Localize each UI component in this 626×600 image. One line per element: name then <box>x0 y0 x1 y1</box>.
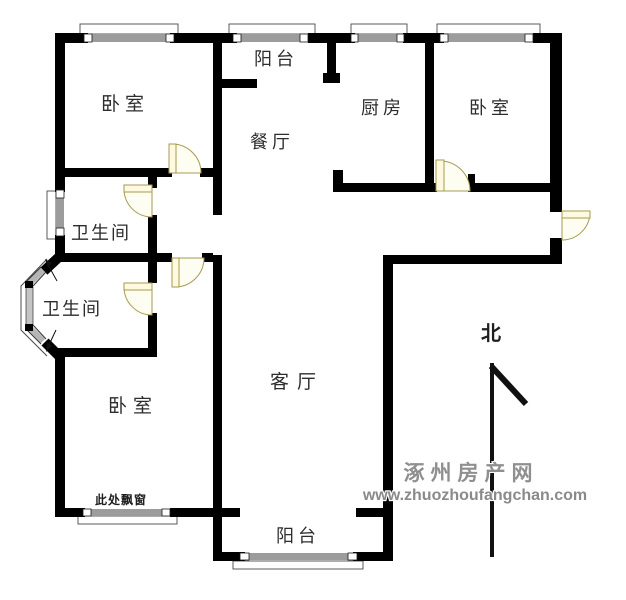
room-label-bathroom-upper: 卫生间 <box>71 223 131 243</box>
wall-segment <box>55 168 172 177</box>
room-label-dining-room: 餐厅 <box>250 132 294 152</box>
window-cap <box>348 553 357 560</box>
window-cap <box>83 509 91 516</box>
watermark: 涿州房产网www.zhuozhoufangchan.com <box>362 461 587 504</box>
window-cap <box>525 34 533 42</box>
doors-layer <box>124 144 590 315</box>
wall-segment <box>55 253 172 262</box>
floor-plan-page: 卧室阳台餐厅厨房卧室卫生间卫生间客厅卧室阳台此处飘窗北 涿州房产网www.zhu… <box>0 0 626 600</box>
window-glass <box>85 509 170 516</box>
wall-segment <box>353 552 392 561</box>
wall-segment <box>213 33 222 215</box>
wall-segment <box>323 73 340 83</box>
watermark-url: www.zhuozhoufangchan.com <box>362 487 587 504</box>
wall-segment <box>468 183 556 192</box>
wall-segment <box>200 168 222 177</box>
window-sill <box>80 24 178 34</box>
door-bathroom-upper-swing <box>124 189 152 217</box>
wall-segment <box>55 352 65 517</box>
room-label-kitchen: 厨房 <box>361 98 405 118</box>
room-label-balcony-bottom: 阳台 <box>276 526 320 546</box>
window-glass <box>245 553 353 560</box>
wall-segment <box>170 508 240 517</box>
bay-window-cap <box>25 324 33 331</box>
wall-segment <box>55 348 157 357</box>
north-arrow <box>491 363 526 557</box>
watermark-site-name: 涿州房产网 <box>404 461 539 485</box>
window-cap <box>300 34 308 42</box>
window-sill <box>78 516 177 524</box>
window-cap <box>351 34 358 42</box>
north-label: 北 <box>481 322 501 345</box>
window-cap <box>56 190 64 198</box>
window-cap <box>166 34 174 42</box>
door-bedroom-top-right-leaf <box>436 160 444 191</box>
window-cap <box>56 228 64 236</box>
door-bathroom-upper-leaf <box>124 185 152 192</box>
room-label-bedroom-top-left: 卧室 <box>101 93 149 115</box>
wall-segment <box>55 33 88 43</box>
window-cap <box>440 34 448 42</box>
room-label-balcony-top: 阳台 <box>254 49 298 69</box>
room-label-bedroom-bottom: 卧室 <box>108 395 158 417</box>
door-bedroom-bottom-leaf <box>172 258 179 287</box>
wall-segment <box>170 33 237 43</box>
window-sill <box>47 191 56 239</box>
window-cap <box>84 34 92 42</box>
bay-window-glass <box>26 287 33 325</box>
window-sill <box>233 561 363 569</box>
wall-segment <box>383 255 562 264</box>
wall-segment <box>55 508 85 517</box>
wall-segment <box>403 33 444 43</box>
window-sill <box>351 24 407 34</box>
door-bedroom-top-left-leaf <box>169 144 176 173</box>
bay-window-note: 此处飘窗 <box>95 492 147 507</box>
window-cap <box>162 509 170 516</box>
north-arrow-head <box>491 366 526 404</box>
window-cap <box>397 34 404 42</box>
bay-window-cap <box>25 281 33 288</box>
door-bathroom-lower-leaf <box>124 283 152 290</box>
wall-segment <box>148 262 157 283</box>
window-sill <box>229 24 315 34</box>
window-cap <box>240 553 249 560</box>
wall-segment <box>425 33 434 192</box>
door-bathroom-lower-swing <box>124 287 152 315</box>
window-glass <box>237 34 308 42</box>
window-glass <box>88 34 170 42</box>
wall-segment <box>356 508 392 517</box>
wall-segment <box>333 183 437 192</box>
window-glass <box>56 197 64 228</box>
room-label-bedroom-top-right: 卧室 <box>469 98 513 118</box>
window-cap <box>233 34 241 42</box>
window-sill <box>437 24 540 34</box>
door-entrance-leaf <box>562 211 590 218</box>
floor-plan-svg: 卧室阳台餐厅厨房卧室卫生间卫生间客厅卧室阳台此处飘窗北 涿州房产网www.zhu… <box>0 0 626 600</box>
room-label-bathroom-lower: 卫生间 <box>42 299 102 319</box>
window-glass <box>355 34 403 42</box>
window-glass <box>444 34 533 42</box>
wall-segment <box>222 79 257 88</box>
room-label-living-room: 客厅 <box>270 371 324 393</box>
